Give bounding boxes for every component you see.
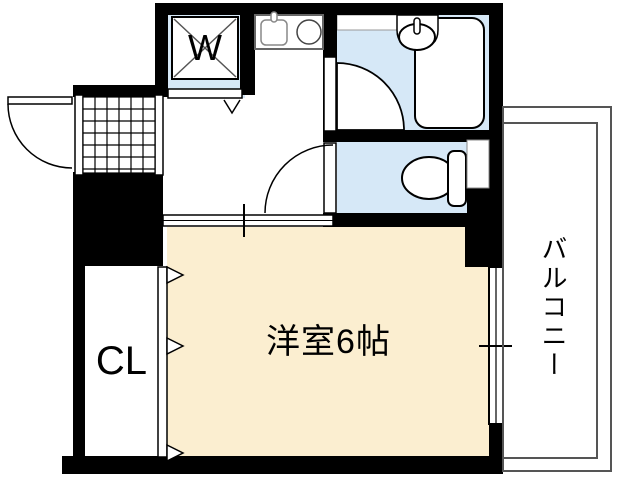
wall-left-lower <box>73 265 85 457</box>
entry-frame-right <box>155 95 163 175</box>
wall-corner-block <box>465 213 503 267</box>
balcony-outline-inner <box>503 123 597 458</box>
wall-bottom <box>62 456 503 474</box>
entry-frame-left <box>75 95 83 175</box>
main-room-floor <box>167 227 490 456</box>
kitchen-tap-icon <box>271 12 277 22</box>
bathroom-shelf <box>337 15 398 30</box>
toilet-door-swing <box>265 145 333 213</box>
wall-left-upper <box>155 3 168 97</box>
toilet-doorway <box>324 143 336 213</box>
floor-plan-drawing <box>0 0 621 485</box>
toilet-side-niche <box>467 140 489 188</box>
wall-below-niche <box>467 188 489 214</box>
stove-burner-icon <box>297 20 321 44</box>
wall-window-bottom-corner <box>489 424 503 474</box>
wall-entry-below <box>73 172 163 266</box>
floor-plan: W CL 洋室6帖 バルコニー <box>0 0 621 485</box>
entrance-door-swing <box>8 104 72 168</box>
washer-door-mark <box>224 100 240 113</box>
closet-door-panel <box>158 267 167 457</box>
wall-washer-right <box>240 13 255 95</box>
toilet-tank-icon <box>448 151 466 206</box>
bathroom-doorway <box>324 57 336 131</box>
wall-entry-top <box>73 85 167 97</box>
entrance-door-panel <box>8 97 72 104</box>
washer-folding-door <box>168 89 242 98</box>
balcony-outline-outer <box>503 107 611 471</box>
kitchen-sink-icon <box>261 20 287 45</box>
washbasin-tap-icon <box>414 18 420 34</box>
